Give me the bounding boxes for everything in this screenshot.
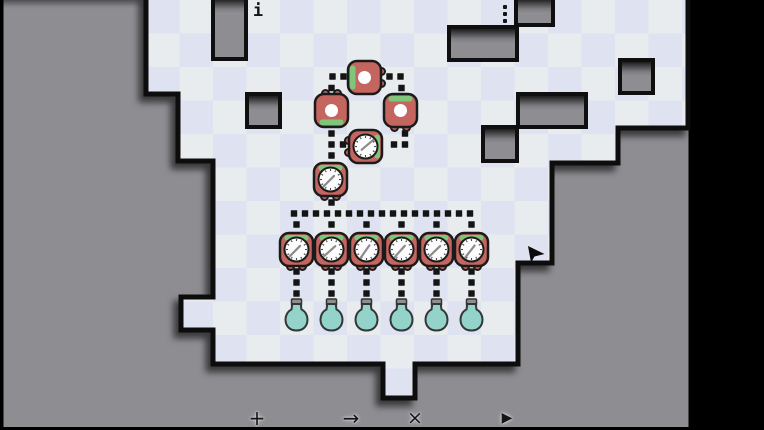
socket-device[interactable] (315, 90, 348, 127)
clock-device[interactable] (420, 233, 453, 270)
socket-hole-icon (358, 71, 371, 84)
wire-dot (456, 210, 462, 216)
wire-dot (346, 210, 352, 216)
clock-device[interactable] (314, 163, 347, 200)
menu-dot (503, 12, 507, 16)
wire-dot (335, 210, 341, 216)
wire-dot (328, 199, 334, 205)
wire-dot (363, 290, 369, 296)
wire-dot (340, 73, 346, 79)
wire-dot (398, 85, 404, 91)
wire-dot (293, 221, 299, 227)
wire-dot (433, 221, 439, 227)
clock-device[interactable] (345, 130, 382, 163)
play-button[interactable]: ▶ (492, 403, 522, 430)
wall-block (247, 94, 280, 127)
wire-dot (313, 210, 319, 216)
accent-edge (389, 96, 413, 102)
wire-dot (390, 210, 396, 216)
wire-dot (401, 210, 407, 216)
wire-dot (293, 268, 299, 274)
wire-dot (293, 290, 299, 296)
socket-hole-icon (394, 104, 407, 117)
wire-dot (398, 290, 404, 296)
wire-dot (328, 221, 334, 227)
wire-dot (328, 290, 334, 296)
wire-dot (423, 210, 429, 216)
wire-dot (328, 141, 334, 147)
wire-dot (468, 290, 474, 296)
wall-block (213, 0, 246, 59)
socket-hole-icon (325, 104, 338, 117)
game-screen: i + → × ▶ (0, 0, 764, 430)
wire-dot (368, 210, 374, 216)
add-button[interactable]: + (242, 403, 272, 430)
accent-edge (350, 66, 356, 90)
wire-dot (468, 268, 474, 274)
wire-dot (398, 221, 404, 227)
wire-dot (433, 279, 439, 285)
game-board (0, 0, 764, 430)
clock-device[interactable] (455, 233, 488, 270)
wire-dot (363, 221, 369, 227)
accent-edge (320, 120, 344, 126)
wall-block (516, 0, 553, 25)
wall-block (483, 127, 517, 161)
wire-dot (468, 221, 474, 227)
wire-dot (445, 210, 451, 216)
wall-block (518, 94, 586, 127)
close-button[interactable]: × (400, 403, 430, 430)
wire-dot (324, 210, 330, 216)
wire-dot (402, 141, 408, 147)
wire-dot (412, 210, 418, 216)
wire-dot (391, 141, 397, 147)
clock-device[interactable] (315, 233, 348, 270)
wire-dot (328, 85, 334, 91)
socket-device[interactable] (384, 94, 417, 131)
wire-dot (433, 268, 439, 274)
wire-dot (467, 210, 473, 216)
menu-dot (503, 5, 507, 9)
wire-dot (329, 73, 335, 79)
wire-dot (468, 279, 474, 285)
menu-dot (503, 19, 507, 23)
wire-dot (398, 268, 404, 274)
wire-dot (293, 279, 299, 285)
wire-dot (328, 279, 334, 285)
wire-dot (302, 210, 308, 216)
wire-dot (291, 210, 297, 216)
wire-dot (397, 73, 403, 79)
wire-dot (398, 279, 404, 285)
clock-device[interactable] (350, 233, 383, 270)
wire-dot (328, 130, 334, 136)
wire-dot (434, 210, 440, 216)
wire-dot (386, 73, 392, 79)
wall-block (620, 60, 653, 93)
wire-dot (328, 268, 334, 274)
clock-device[interactable] (385, 233, 418, 270)
menu-icon[interactable] (495, 2, 515, 26)
wire-dot (328, 152, 334, 158)
next-arrow-button[interactable]: → (336, 403, 366, 430)
wire-dot (363, 279, 369, 285)
wire-dot (357, 210, 363, 216)
socket-device[interactable] (348, 61, 385, 94)
wire-dot (433, 290, 439, 296)
info-button[interactable]: i (247, 0, 269, 22)
wall-block (449, 27, 517, 60)
wire-dot (363, 268, 369, 274)
clock-device[interactable] (280, 233, 313, 270)
wire-dot (379, 210, 385, 216)
